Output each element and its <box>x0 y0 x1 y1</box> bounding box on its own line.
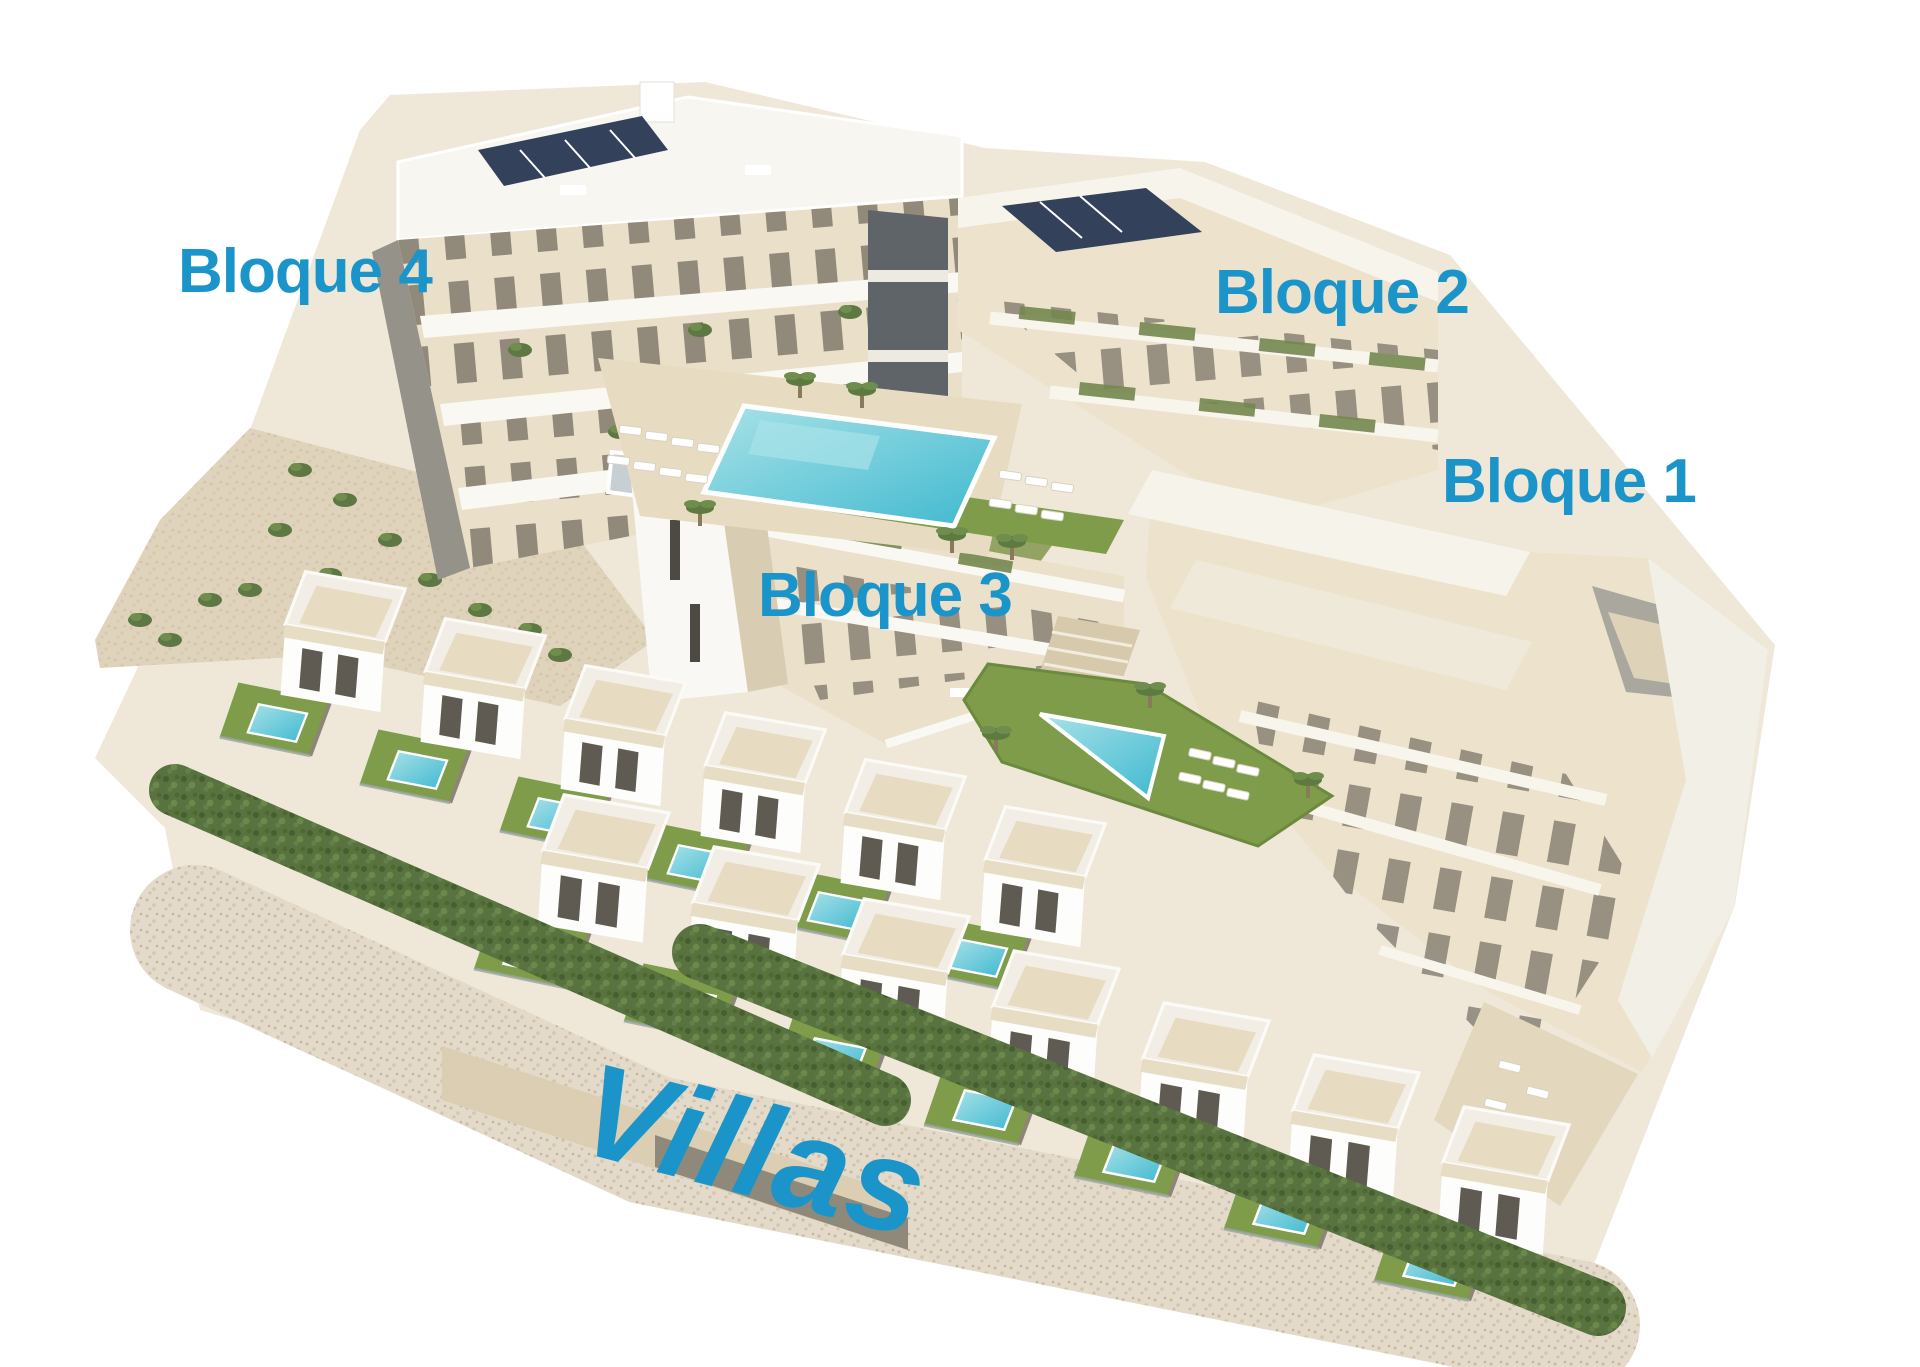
site-plan: Bloque 4 Bloque 2 Bloque 1 Bloque 3 Vill… <box>0 0 1920 1367</box>
bloque-2-label: Bloque 2 <box>1215 258 1469 327</box>
bloque-4-label: Bloque 4 <box>178 237 433 306</box>
bloque-1-label: Bloque 1 <box>1442 447 1696 516</box>
bloque-3-label: Bloque 3 <box>758 561 1012 630</box>
site-plan-render: Bloque 4 Bloque 2 Bloque 1 Bloque 3 Vill… <box>0 0 1920 1367</box>
